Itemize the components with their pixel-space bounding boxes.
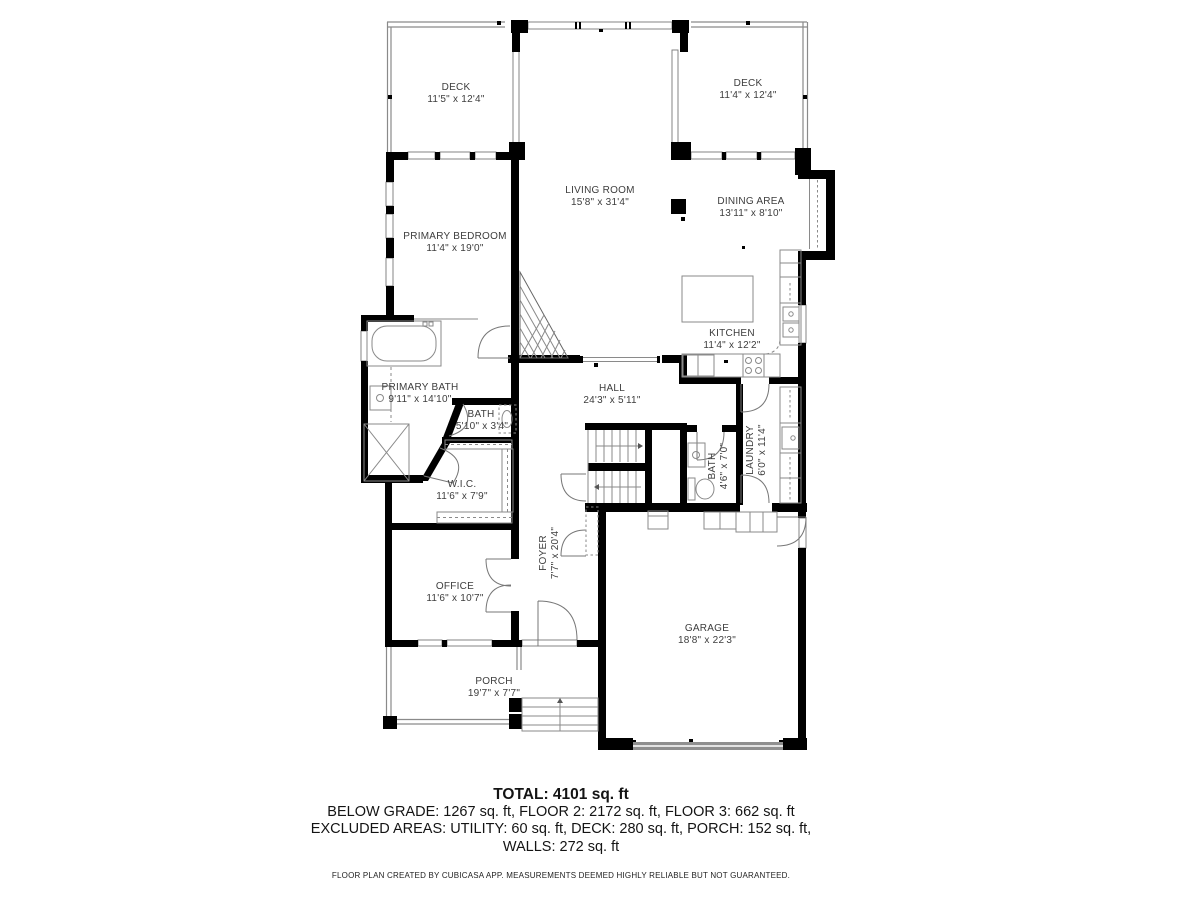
svg-text:11'4" x 12'2": 11'4" x 12'2" — [703, 340, 761, 351]
svg-text:5'10" x 3'4": 5'10" x 3'4" — [456, 421, 508, 432]
room-label-deck-right: DECK 11'4" x 12'4" — [719, 78, 777, 101]
svg-text:PRIMARY BEDROOM: PRIMARY BEDROOM — [403, 231, 506, 242]
svg-text:18'8" x 22'3": 18'8" x 22'3" — [678, 635, 736, 646]
svg-text:OFFICE: OFFICE — [436, 581, 474, 592]
area-summary: TOTAL: 4101 sq. ft BELOW GRADE: 1267 sq.… — [0, 786, 1122, 856]
room-label-deck-left: DECK 11'5" x 12'4" — [427, 82, 485, 105]
svg-text:LAUNDRY: LAUNDRY — [745, 425, 756, 474]
room-label-office: OFFICE 11'6" x 10'7" — [426, 581, 484, 604]
svg-text:BATH: BATH — [468, 409, 495, 420]
svg-text:11'4" x 19'0": 11'4" x 19'0" — [426, 243, 484, 254]
room-label-wic: W.I.C. 11'6" x 7'9" — [436, 479, 488, 502]
room-label-laundry: LAUNDRY 6'0" x 11'4" — [745, 424, 768, 476]
garage-door — [633, 742, 783, 750]
svg-text:PRIMARY BATH: PRIMARY BATH — [382, 382, 459, 393]
room-label-primary-bedroom: PRIMARY BEDROOM 11'4" x 19'0" — [403, 231, 506, 254]
floor-plan-canvas: DECK 11'5" x 12'4" DECK 11'4" x 12'4" LI… — [0, 0, 1200, 900]
svg-text:11'6" x 10'7": 11'6" x 10'7" — [426, 593, 484, 604]
room-label-bath-upper: BATH 5'10" x 3'4" — [456, 409, 508, 432]
summary-line-floors: BELOW GRADE: 1267 sq. ft, FLOOR 2: 2172 … — [0, 804, 1122, 822]
svg-text:6'0" x 11'4": 6'0" x 11'4" — [757, 424, 768, 476]
svg-text:PORCH: PORCH — [475, 676, 512, 687]
svg-text:BATH: BATH — [707, 453, 718, 480]
room-label-dining-area: DINING AREA 13'11" x 8'10" — [717, 196, 784, 219]
svg-text:W.I.C.: W.I.C. — [448, 479, 477, 490]
total-area: TOTAL: 4101 sq. ft — [0, 786, 1122, 804]
svg-text:11'5" x 12'4": 11'5" x 12'4" — [427, 94, 485, 105]
bathtub-icon — [367, 321, 441, 366]
room-label-porch: PORCH 19'7" x 7'7" — [468, 676, 520, 699]
room-label-hall: HALL 24'3" x 5'11" — [583, 383, 641, 406]
room-labels: DECK 11'5" x 12'4" DECK 11'4" x 12'4" LI… — [382, 78, 785, 699]
summary-line-walls: WALLS: 272 sq. ft — [0, 839, 1122, 857]
room-label-living-room: LIVING ROOM 15'8" x 31'4" — [565, 185, 634, 208]
room-label-foyer: FOYER 7'7" x 20'4" — [538, 527, 561, 579]
room-label-kitchen: KITCHEN 11'4" x 12'2" — [703, 328, 761, 351]
garage-fixtures — [648, 511, 736, 529]
floor-plan: DECK 11'5" x 12'4" DECK 11'4" x 12'4" LI… — [0, 0, 1200, 900]
svg-text:4'6" x 7'0": 4'6" x 7'0" — [719, 443, 730, 490]
shower-icon — [364, 424, 409, 481]
svg-text:11'6" x 7'9": 11'6" x 7'9" — [436, 491, 488, 502]
summary-line-excluded: EXCLUDED AREAS: UTILITY: 60 sq. ft, DECK… — [0, 821, 1122, 839]
kitchen-counter — [780, 250, 801, 345]
room-label-bath-lower: BATH 4'6" x 7'0" — [707, 443, 730, 490]
svg-text:9'11" x 14'10": 9'11" x 14'10" — [388, 394, 451, 405]
room-label-garage: GARAGE 18'8" x 22'3" — [678, 623, 736, 646]
svg-text:15'8" x 31'4": 15'8" x 31'4" — [571, 197, 629, 208]
svg-text:KITCHEN: KITCHEN — [709, 328, 755, 339]
room-label-primary-bath: PRIMARY BATH 9'11" x 14'10" — [382, 382, 459, 405]
svg-text:11'4" x 12'4": 11'4" x 12'4" — [719, 90, 777, 101]
disclaimer: FLOOR PLAN CREATED BY CUBICASA APP. MEAS… — [0, 871, 1122, 880]
svg-text:DECK: DECK — [442, 82, 471, 93]
deck-porch-railings — [387, 22, 808, 724]
svg-text:HALL: HALL — [599, 383, 625, 394]
svg-text:DECK: DECK — [734, 78, 763, 89]
svg-text:FOYER: FOYER — [538, 535, 549, 571]
svg-text:LIVING ROOM: LIVING ROOM — [565, 185, 634, 196]
svg-text:7'7" x 20'4": 7'7" x 20'4" — [550, 527, 561, 579]
svg-text:GARAGE: GARAGE — [685, 623, 729, 634]
laundry-counter — [780, 387, 801, 503]
svg-text:13'11" x 8'10": 13'11" x 8'10" — [719, 208, 782, 219]
svg-text:19'7" x 7'7": 19'7" x 7'7" — [468, 688, 520, 699]
svg-text:DINING AREA: DINING AREA — [717, 196, 784, 207]
svg-text:24'3" x 5'11": 24'3" x 5'11" — [583, 395, 641, 406]
